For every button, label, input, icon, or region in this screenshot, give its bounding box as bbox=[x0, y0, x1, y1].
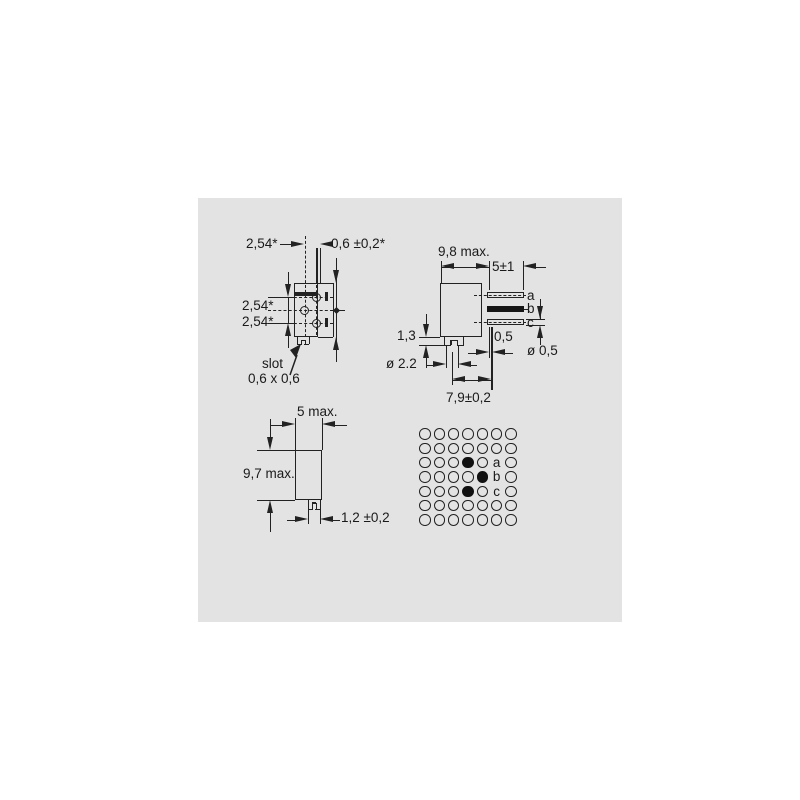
line bbox=[257, 500, 295, 502]
dimension-arrow bbox=[267, 437, 273, 450]
dimension-arrow bbox=[320, 516, 333, 522]
dimension-arrow bbox=[478, 376, 491, 382]
line bbox=[536, 267, 546, 269]
line bbox=[325, 292, 328, 301]
dimension-arrow bbox=[433, 361, 446, 367]
dim-label-mount-distance: 7,9±0,2 bbox=[446, 391, 491, 405]
dim-label-tab-width: 1,2 ±0,2 bbox=[341, 511, 390, 525]
line bbox=[287, 520, 295, 522]
pin-label-c: c bbox=[527, 316, 534, 330]
slot-pointer-arrow bbox=[284, 341, 310, 377]
pin-hole-b bbox=[300, 306, 309, 315]
component-body-elevation bbox=[295, 450, 322, 500]
dimension-arrow bbox=[267, 500, 273, 513]
dim-label-width: 5 max. bbox=[297, 405, 338, 419]
line bbox=[325, 318, 328, 327]
component-body-side bbox=[440, 283, 482, 337]
line bbox=[280, 244, 291, 246]
dimension-arrow bbox=[492, 349, 505, 355]
dimension-arrow bbox=[322, 421, 335, 427]
dimension-arrow bbox=[282, 421, 295, 427]
dimension-arrow bbox=[523, 263, 536, 269]
line bbox=[426, 314, 428, 324]
dim-label-standoff: 1,3 bbox=[397, 329, 416, 343]
dimension-arrow bbox=[458, 361, 471, 367]
pin-a bbox=[487, 292, 524, 298]
line bbox=[468, 353, 476, 355]
pin-c bbox=[487, 319, 524, 325]
dimension-arrow bbox=[291, 241, 304, 247]
pin-hole-a bbox=[312, 293, 321, 302]
pin-hole-c bbox=[312, 319, 321, 328]
dim-label-pin-dia: ø 0,5 bbox=[527, 344, 558, 358]
line bbox=[335, 425, 347, 427]
line bbox=[471, 365, 477, 367]
dim-label-height: 9,7 max. bbox=[243, 467, 295, 481]
line bbox=[505, 353, 513, 355]
line bbox=[257, 450, 295, 452]
pin-label-b: b bbox=[527, 302, 535, 316]
dim-label-pin-width: 0,6 ±0,2* bbox=[331, 237, 385, 251]
dimension-arrow bbox=[441, 263, 454, 269]
line bbox=[270, 419, 272, 437]
dimension-arrow bbox=[452, 376, 465, 382]
dim-label-column-pitch: 2,54* bbox=[246, 237, 278, 251]
dimension-arrow bbox=[333, 270, 339, 283]
dimension-arrow bbox=[423, 324, 429, 337]
line bbox=[270, 513, 272, 532]
drawing-panel bbox=[198, 198, 622, 622]
line bbox=[450, 340, 458, 342]
line bbox=[316, 248, 318, 284]
dimension-arrow bbox=[476, 263, 489, 269]
dimension-arrow bbox=[537, 325, 543, 338]
dimension-arrow bbox=[423, 345, 429, 358]
line bbox=[318, 337, 333, 339]
dimension-arrow bbox=[285, 323, 291, 336]
pin-b bbox=[487, 306, 524, 312]
line bbox=[320, 248, 322, 284]
slot-label: slot bbox=[262, 357, 283, 371]
dim-label-boss-dia: ø 2.2 bbox=[386, 357, 417, 371]
dim-label-pin-length: 5±1 bbox=[492, 260, 514, 274]
line bbox=[270, 425, 282, 427]
line bbox=[426, 358, 428, 368]
line bbox=[288, 297, 290, 323]
dim-label-row-pitch-1: 2,54* bbox=[242, 299, 274, 313]
dimension-arrow bbox=[285, 284, 291, 297]
dimension-arrow bbox=[333, 337, 339, 350]
dimension-arrow bbox=[295, 516, 308, 522]
line bbox=[288, 272, 290, 284]
page: { "colors": {"page_bg":"#ffffff","panel_… bbox=[0, 0, 800, 800]
dim-label-body-depth: 9,8 max. bbox=[438, 245, 490, 259]
line bbox=[312, 502, 317, 504]
dim-label-offset: 0,5 bbox=[494, 330, 513, 344]
dimension-arrow bbox=[537, 306, 543, 319]
line bbox=[333, 520, 340, 522]
dimension-arrow bbox=[476, 349, 489, 355]
dim-label-row-pitch-2: 2,54* bbox=[242, 315, 274, 329]
